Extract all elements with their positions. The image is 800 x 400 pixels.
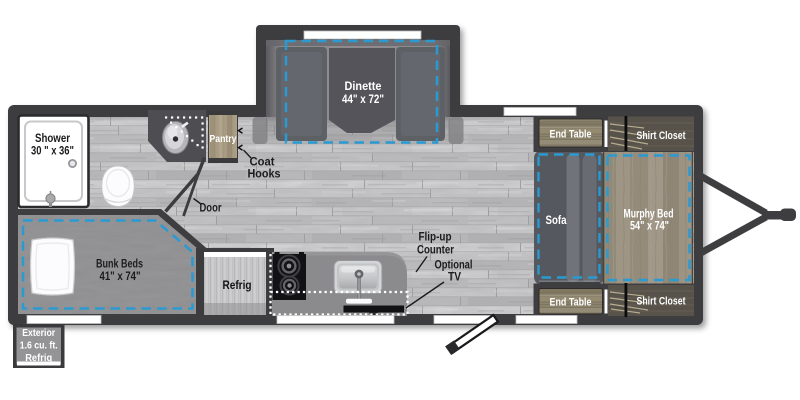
svg-text:Flip-up: Flip-up bbox=[419, 232, 452, 244]
svg-text:TV: TV bbox=[448, 272, 461, 284]
svg-text:44" x 72": 44" x 72" bbox=[342, 92, 384, 106]
svg-text:End Table: End Table bbox=[550, 129, 592, 141]
svg-text:41" x 74": 41" x 74" bbox=[100, 269, 141, 283]
svg-text:Shirt Closet: Shirt Closet bbox=[637, 130, 686, 142]
svg-text:Exterior: Exterior bbox=[22, 328, 55, 339]
svg-text:Coat: Coat bbox=[250, 157, 275, 169]
svg-text:Door: Door bbox=[200, 203, 222, 215]
svg-text:Murphy Bed: Murphy Bed bbox=[624, 209, 674, 221]
svg-text:End Table: End Table bbox=[550, 297, 592, 309]
svg-text:54" x 74": 54" x 74" bbox=[630, 221, 669, 233]
svg-text:Refrig: Refrig bbox=[25, 353, 52, 364]
svg-text:Pantry: Pantry bbox=[210, 134, 237, 145]
svg-text:Optional: Optional bbox=[435, 260, 473, 272]
svg-text:30 " x 36": 30 " x 36" bbox=[31, 144, 74, 158]
svg-text:Refrig: Refrig bbox=[223, 280, 252, 292]
svg-text:Hooks: Hooks bbox=[248, 169, 281, 181]
svg-text:Shirt Closet: Shirt Closet bbox=[637, 296, 686, 308]
svg-text:Counter: Counter bbox=[417, 245, 454, 257]
svg-text:1.6 cu. ft.: 1.6 cu. ft. bbox=[20, 341, 58, 352]
svg-text:Dinette: Dinette bbox=[345, 79, 382, 93]
svg-text:Sofa: Sofa bbox=[546, 215, 568, 227]
